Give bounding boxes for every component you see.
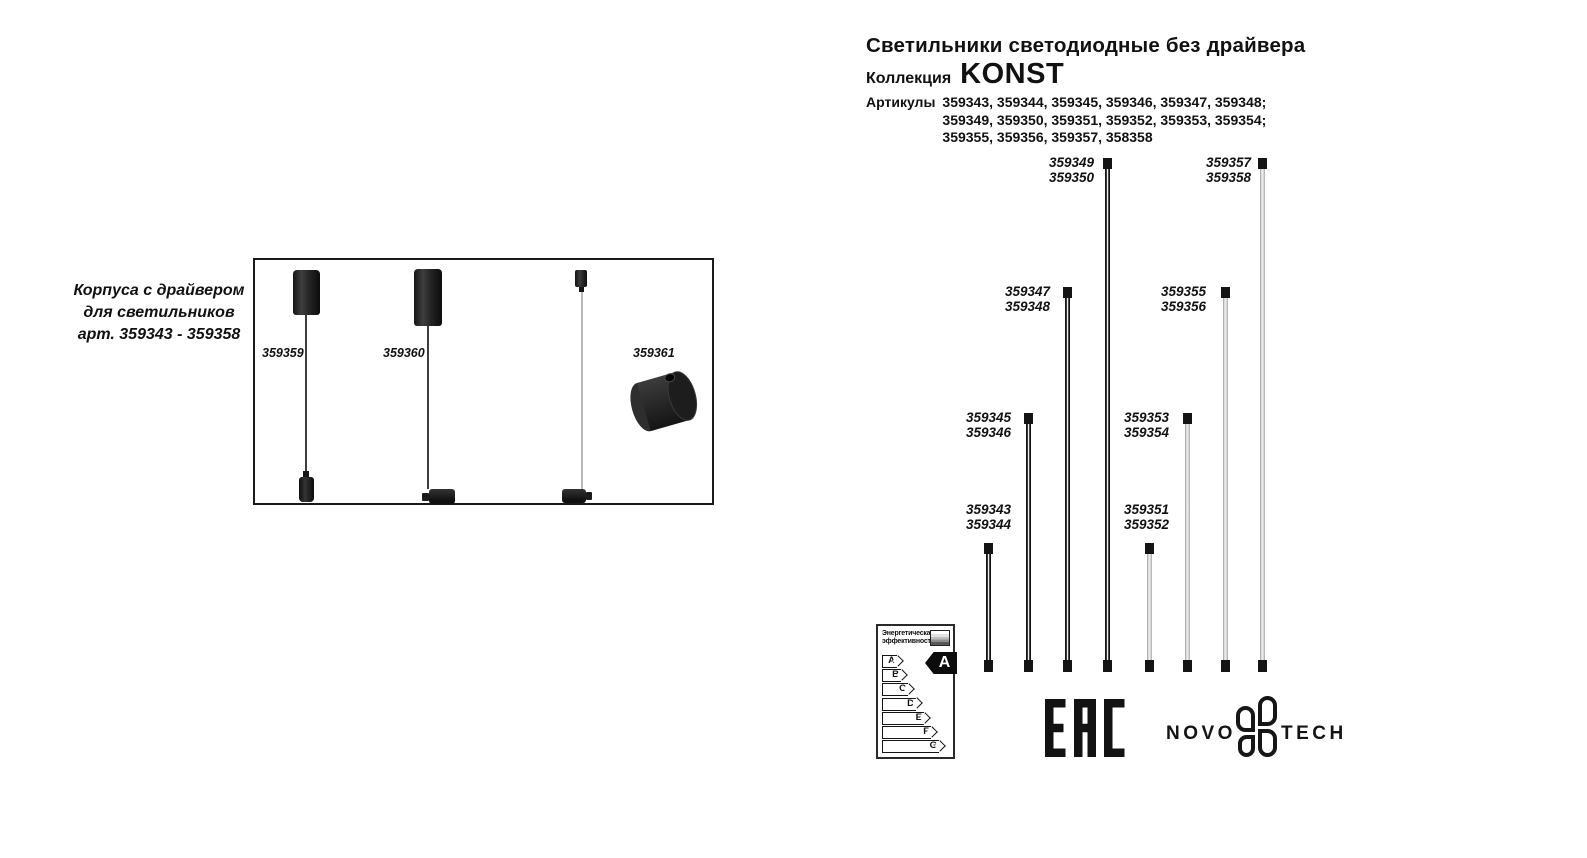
- wire-top-holder: [575, 270, 587, 287]
- collection-name: KONST: [960, 58, 1064, 91]
- caption-line: для светильников: [70, 302, 248, 324]
- energy-class-arrow-e: E: [882, 712, 924, 725]
- tube-body: [1185, 424, 1190, 660]
- tube-bottom-cap: [1183, 660, 1192, 672]
- energy-class-arrow-g: G: [882, 740, 939, 753]
- tube-body: [1147, 554, 1152, 660]
- tube-bottom-cap: [1145, 660, 1154, 672]
- energy-class-arrow-f: F: [882, 726, 931, 739]
- tube-bottom-cap: [1258, 660, 1267, 672]
- energy-gradient-stripes-icon: [930, 630, 950, 646]
- part-label-359359: 359359: [262, 346, 304, 360]
- tube-label: 359355359356: [1146, 285, 1206, 314]
- novotech-flower-icon: [1236, 696, 1280, 758]
- articles-line: 359355, 359356, 359357, 358358: [942, 129, 1266, 147]
- tube-body: [1026, 424, 1031, 660]
- fitting-nub: [422, 493, 429, 501]
- tube-top-cap: [1221, 287, 1230, 298]
- tube-body: [1065, 298, 1070, 660]
- collection-row: Коллекция KONST: [866, 58, 1064, 91]
- brand-wordmark-novo: NOVO: [1166, 723, 1236, 745]
- caption-line: Корпуса с драйвером: [70, 280, 248, 302]
- tube-label: 359347359348: [990, 285, 1050, 314]
- tube-bottom-cap: [984, 660, 993, 672]
- caption-line: арт. 359343 - 359358: [70, 324, 248, 346]
- canopy-cylinder-359359: [293, 270, 320, 315]
- energy-class-arrow-c: C: [882, 683, 908, 696]
- tube-label: 359349359350: [1034, 156, 1094, 185]
- tube-bottom-cap: [1024, 660, 1033, 672]
- tube-body: [1223, 298, 1228, 660]
- horizontal-end-fitting: [562, 489, 586, 503]
- pendant-housings-box: 359359 359360 359361: [253, 258, 714, 505]
- page-title: Светильники светодиодные без драйвера: [866, 34, 1305, 58]
- tube-359343-359344: [984, 543, 993, 672]
- driver-cylinder-359361: [627, 366, 703, 436]
- energy-class-arrow-a: A: [882, 655, 897, 668]
- tube-359357-359358: [1258, 158, 1267, 672]
- tube-label: 359353359354: [1109, 411, 1169, 440]
- part-label-359361: 359361: [633, 346, 675, 360]
- tube-bottom-cap: [1103, 660, 1112, 672]
- tube-top-cap: [1063, 287, 1072, 298]
- tube-bottom-cap: [1063, 660, 1072, 672]
- horizontal-end-fitting: [429, 489, 455, 504]
- collection-label: Коллекция: [866, 70, 951, 88]
- datasheet-page: Светильники светодиодные без драйвера Ко…: [0, 0, 1587, 858]
- tube-359347-359348: [1063, 287, 1072, 672]
- part-label-359360: 359360: [383, 346, 425, 360]
- articles-label: Артикулы: [866, 94, 935, 147]
- articles-line: 359349, 359350, 359351, 359352, 359353, …: [942, 112, 1266, 130]
- tube-359353-359354: [1183, 413, 1192, 672]
- articles-list: 359343, 359344, 359345, 359346, 359347, …: [942, 94, 1266, 147]
- canopy-cylinder-359360: [414, 269, 442, 326]
- tube-label: 359345359346: [951, 411, 1011, 440]
- tube-body: [1260, 169, 1265, 660]
- tube-top-cap: [1145, 543, 1154, 554]
- tube-label: 359351359352: [1109, 503, 1169, 532]
- brand-wordmark-tech: TECH: [1281, 723, 1347, 745]
- tube-359355-359356: [1221, 287, 1230, 672]
- articles-block: Артикулы 359343, 359344, 359345, 359346,…: [866, 94, 1266, 147]
- cable-end-fitting: [299, 477, 314, 502]
- tube-bottom-cap: [1221, 660, 1230, 672]
- tube-top-cap: [1103, 158, 1112, 169]
- tube-label: 359343359344: [951, 503, 1011, 532]
- tube-body: [986, 554, 991, 660]
- eac-certification-mark-icon: [1045, 699, 1125, 757]
- energy-efficiency-label: Энергетическая эффективность A B C D E F…: [876, 624, 955, 759]
- energy-class-arrow-d: D: [882, 698, 916, 711]
- suspension-cable: [305, 315, 307, 473]
- suspension-wire: [581, 292, 583, 489]
- tube-top-cap: [1258, 158, 1267, 169]
- suspension-cable: [427, 326, 429, 489]
- energy-class-arrow-b: B: [882, 669, 901, 682]
- articles-line: 359343, 359344, 359345, 359346, 359347, …: [942, 94, 1266, 112]
- tube-top-cap: [1024, 413, 1033, 424]
- tube-top-cap: [984, 543, 993, 554]
- energy-label-header: Энергетическая эффективность: [882, 630, 935, 645]
- tube-label: 359357359358: [1191, 156, 1251, 185]
- fitting-nub: [586, 492, 592, 500]
- tube-359345-359346: [1024, 413, 1033, 672]
- housings-caption: Корпуса с драйвером для светильников арт…: [70, 280, 248, 346]
- tube-359351-359352: [1145, 543, 1154, 672]
- tube-top-cap: [1183, 413, 1192, 424]
